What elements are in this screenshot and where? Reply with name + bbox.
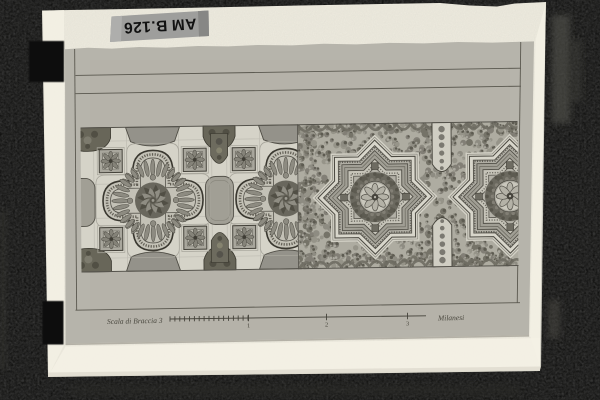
svg-text:3: 3 (406, 321, 409, 328)
svg-text:1: 1 (247, 323, 250, 330)
svg-text:2: 2 (325, 322, 328, 329)
svg-text:Milanesi: Milanesi (437, 313, 464, 323)
svg-text:Scala di Braccia 3: Scala di Braccia 3 (107, 316, 163, 326)
